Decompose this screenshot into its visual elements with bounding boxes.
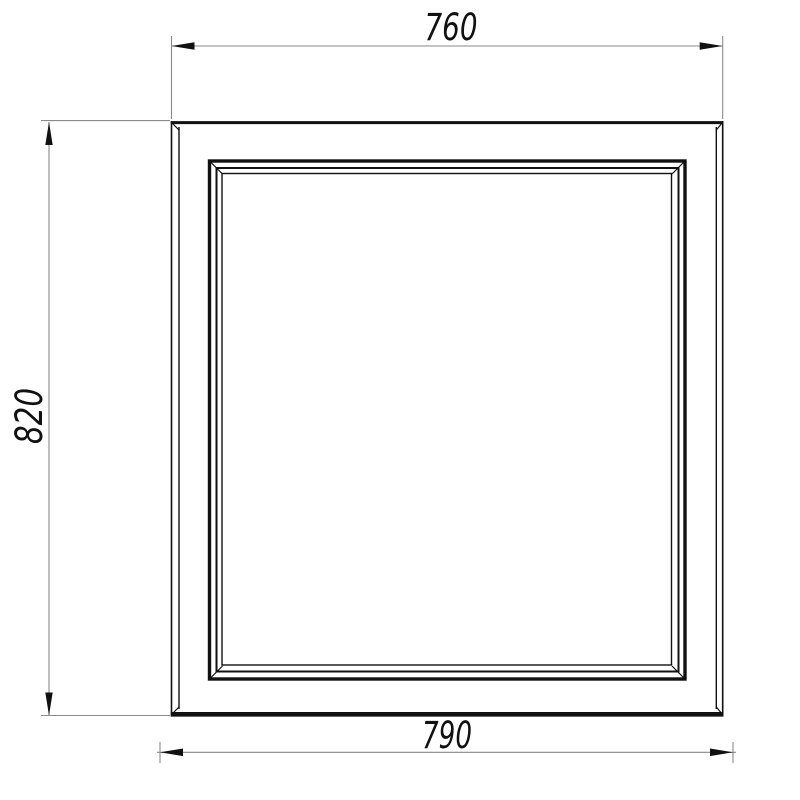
- frame-bevel-top-left: [173, 124, 179, 130]
- technical-drawing-page: 760 820 790: [0, 0, 800, 800]
- frame-outline: [171, 121, 724, 717]
- dimension-top: 760: [172, 6, 723, 119]
- molding-outer-rect: [210, 161, 686, 679]
- dimension-left: 820: [8, 121, 170, 716]
- dimension-top-label: 760: [425, 6, 478, 49]
- molding-middle-rect: [217, 168, 679, 672]
- arrowhead-right-icon: [710, 749, 733, 757]
- molding-inner-rect: [222, 174, 672, 666]
- frame-technical-drawing: 760 820 790: [0, 0, 800, 800]
- arrowhead-left-icon: [172, 42, 195, 50]
- arrowhead-down-icon: [45, 693, 52, 716]
- dimension-left-label: 820: [8, 388, 51, 444]
- frame-bevel-top-right: [716, 124, 721, 130]
- dimension-bottom: 790: [157, 714, 736, 763]
- arrowhead-up-icon: [45, 122, 52, 145]
- panel-molding: [210, 161, 686, 679]
- dimension-bottom-label: 790: [422, 714, 472, 757]
- arrowhead-left-icon: [160, 749, 183, 757]
- arrowhead-right-icon: [700, 42, 723, 50]
